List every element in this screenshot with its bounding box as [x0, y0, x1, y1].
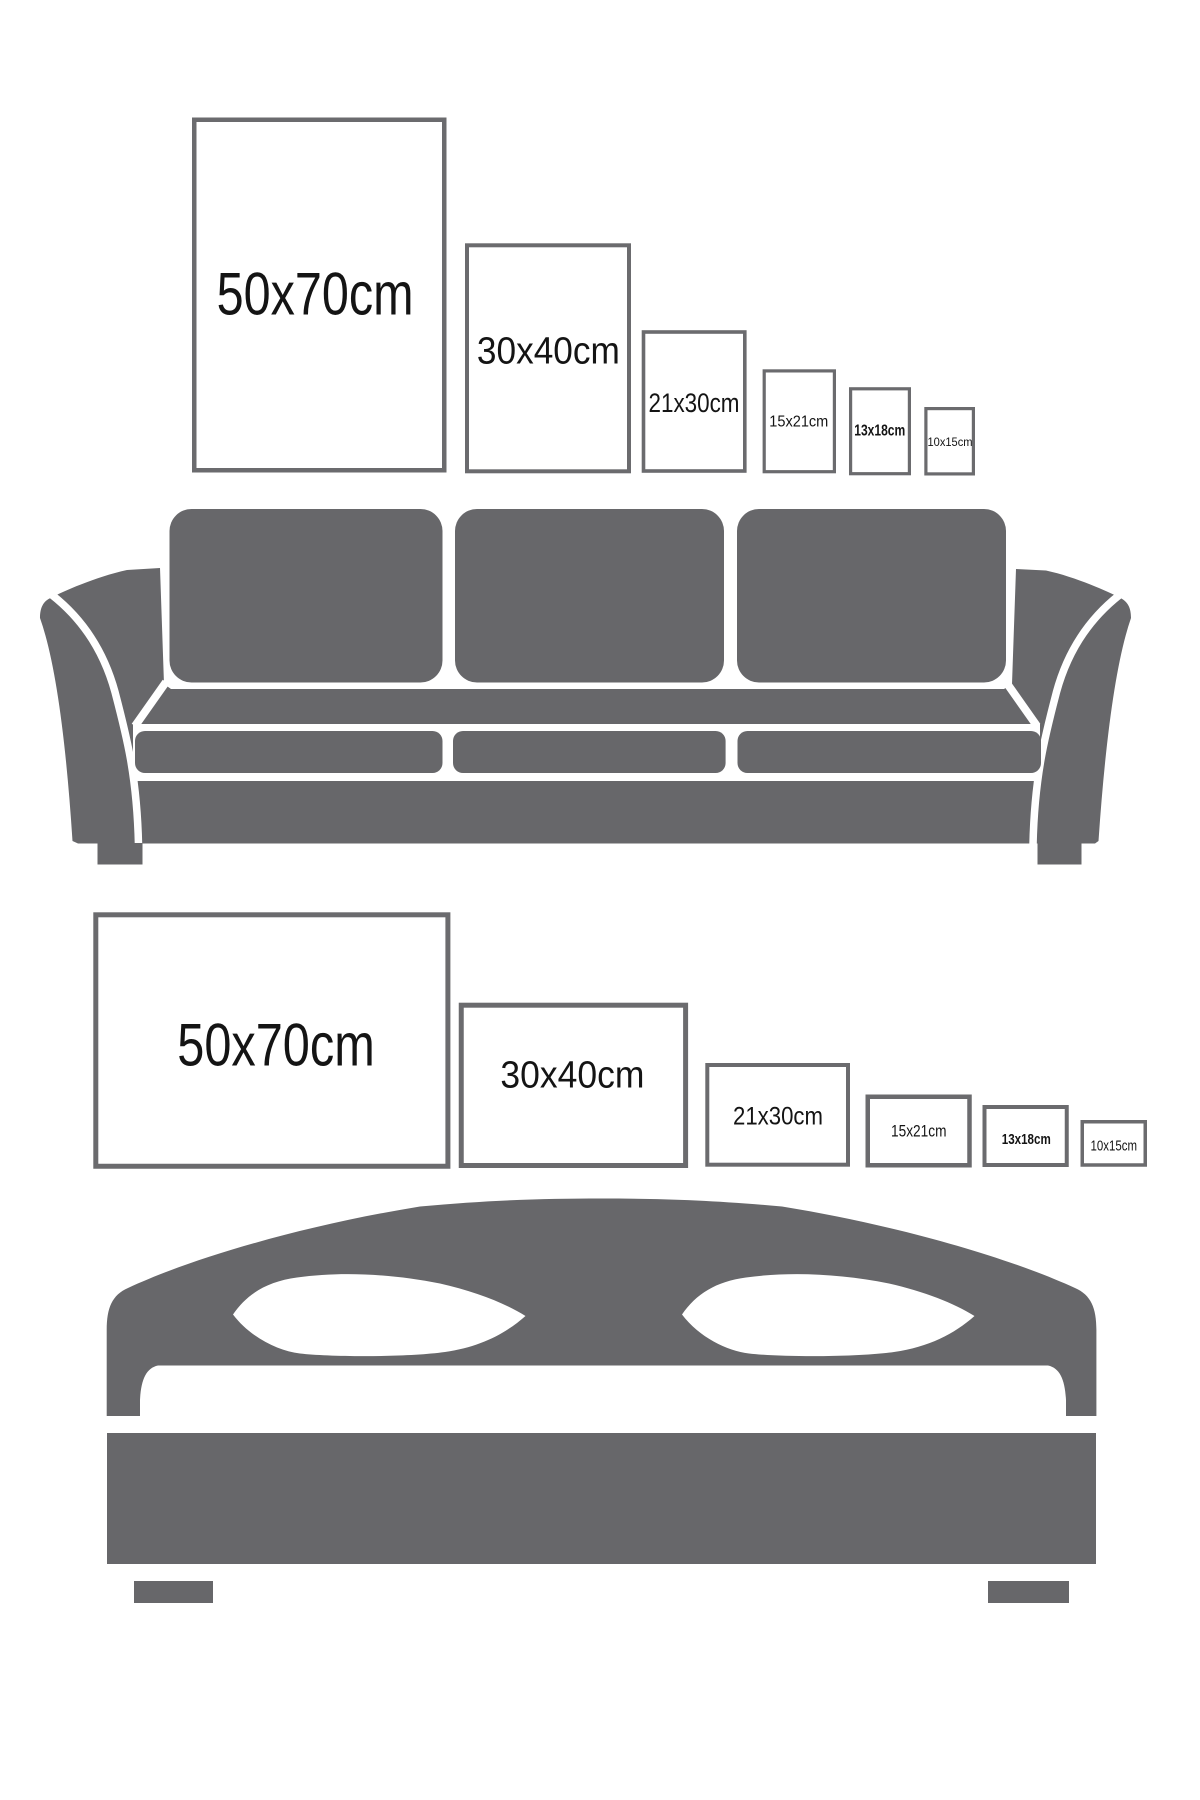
svg-text:50x70cm: 50x70cm [177, 1010, 375, 1078]
svg-text:13x18cm: 13x18cm [854, 423, 905, 440]
svg-text:21x30cm: 21x30cm [733, 1102, 823, 1130]
svg-text:13x18cm: 13x18cm [1002, 1132, 1051, 1148]
svg-text:15x21cm: 15x21cm [769, 413, 828, 430]
svg-text:50x70cm: 50x70cm [217, 260, 414, 328]
svg-text:15x21cm: 15x21cm [891, 1122, 947, 1140]
svg-text:10x15cm: 10x15cm [1091, 1139, 1138, 1155]
svg-text:10x15cm: 10x15cm [928, 435, 973, 449]
svg-text:30x40cm: 30x40cm [477, 331, 620, 373]
svg-text:30x40cm: 30x40cm [500, 1055, 644, 1097]
svg-text:21x30cm: 21x30cm [649, 387, 740, 418]
